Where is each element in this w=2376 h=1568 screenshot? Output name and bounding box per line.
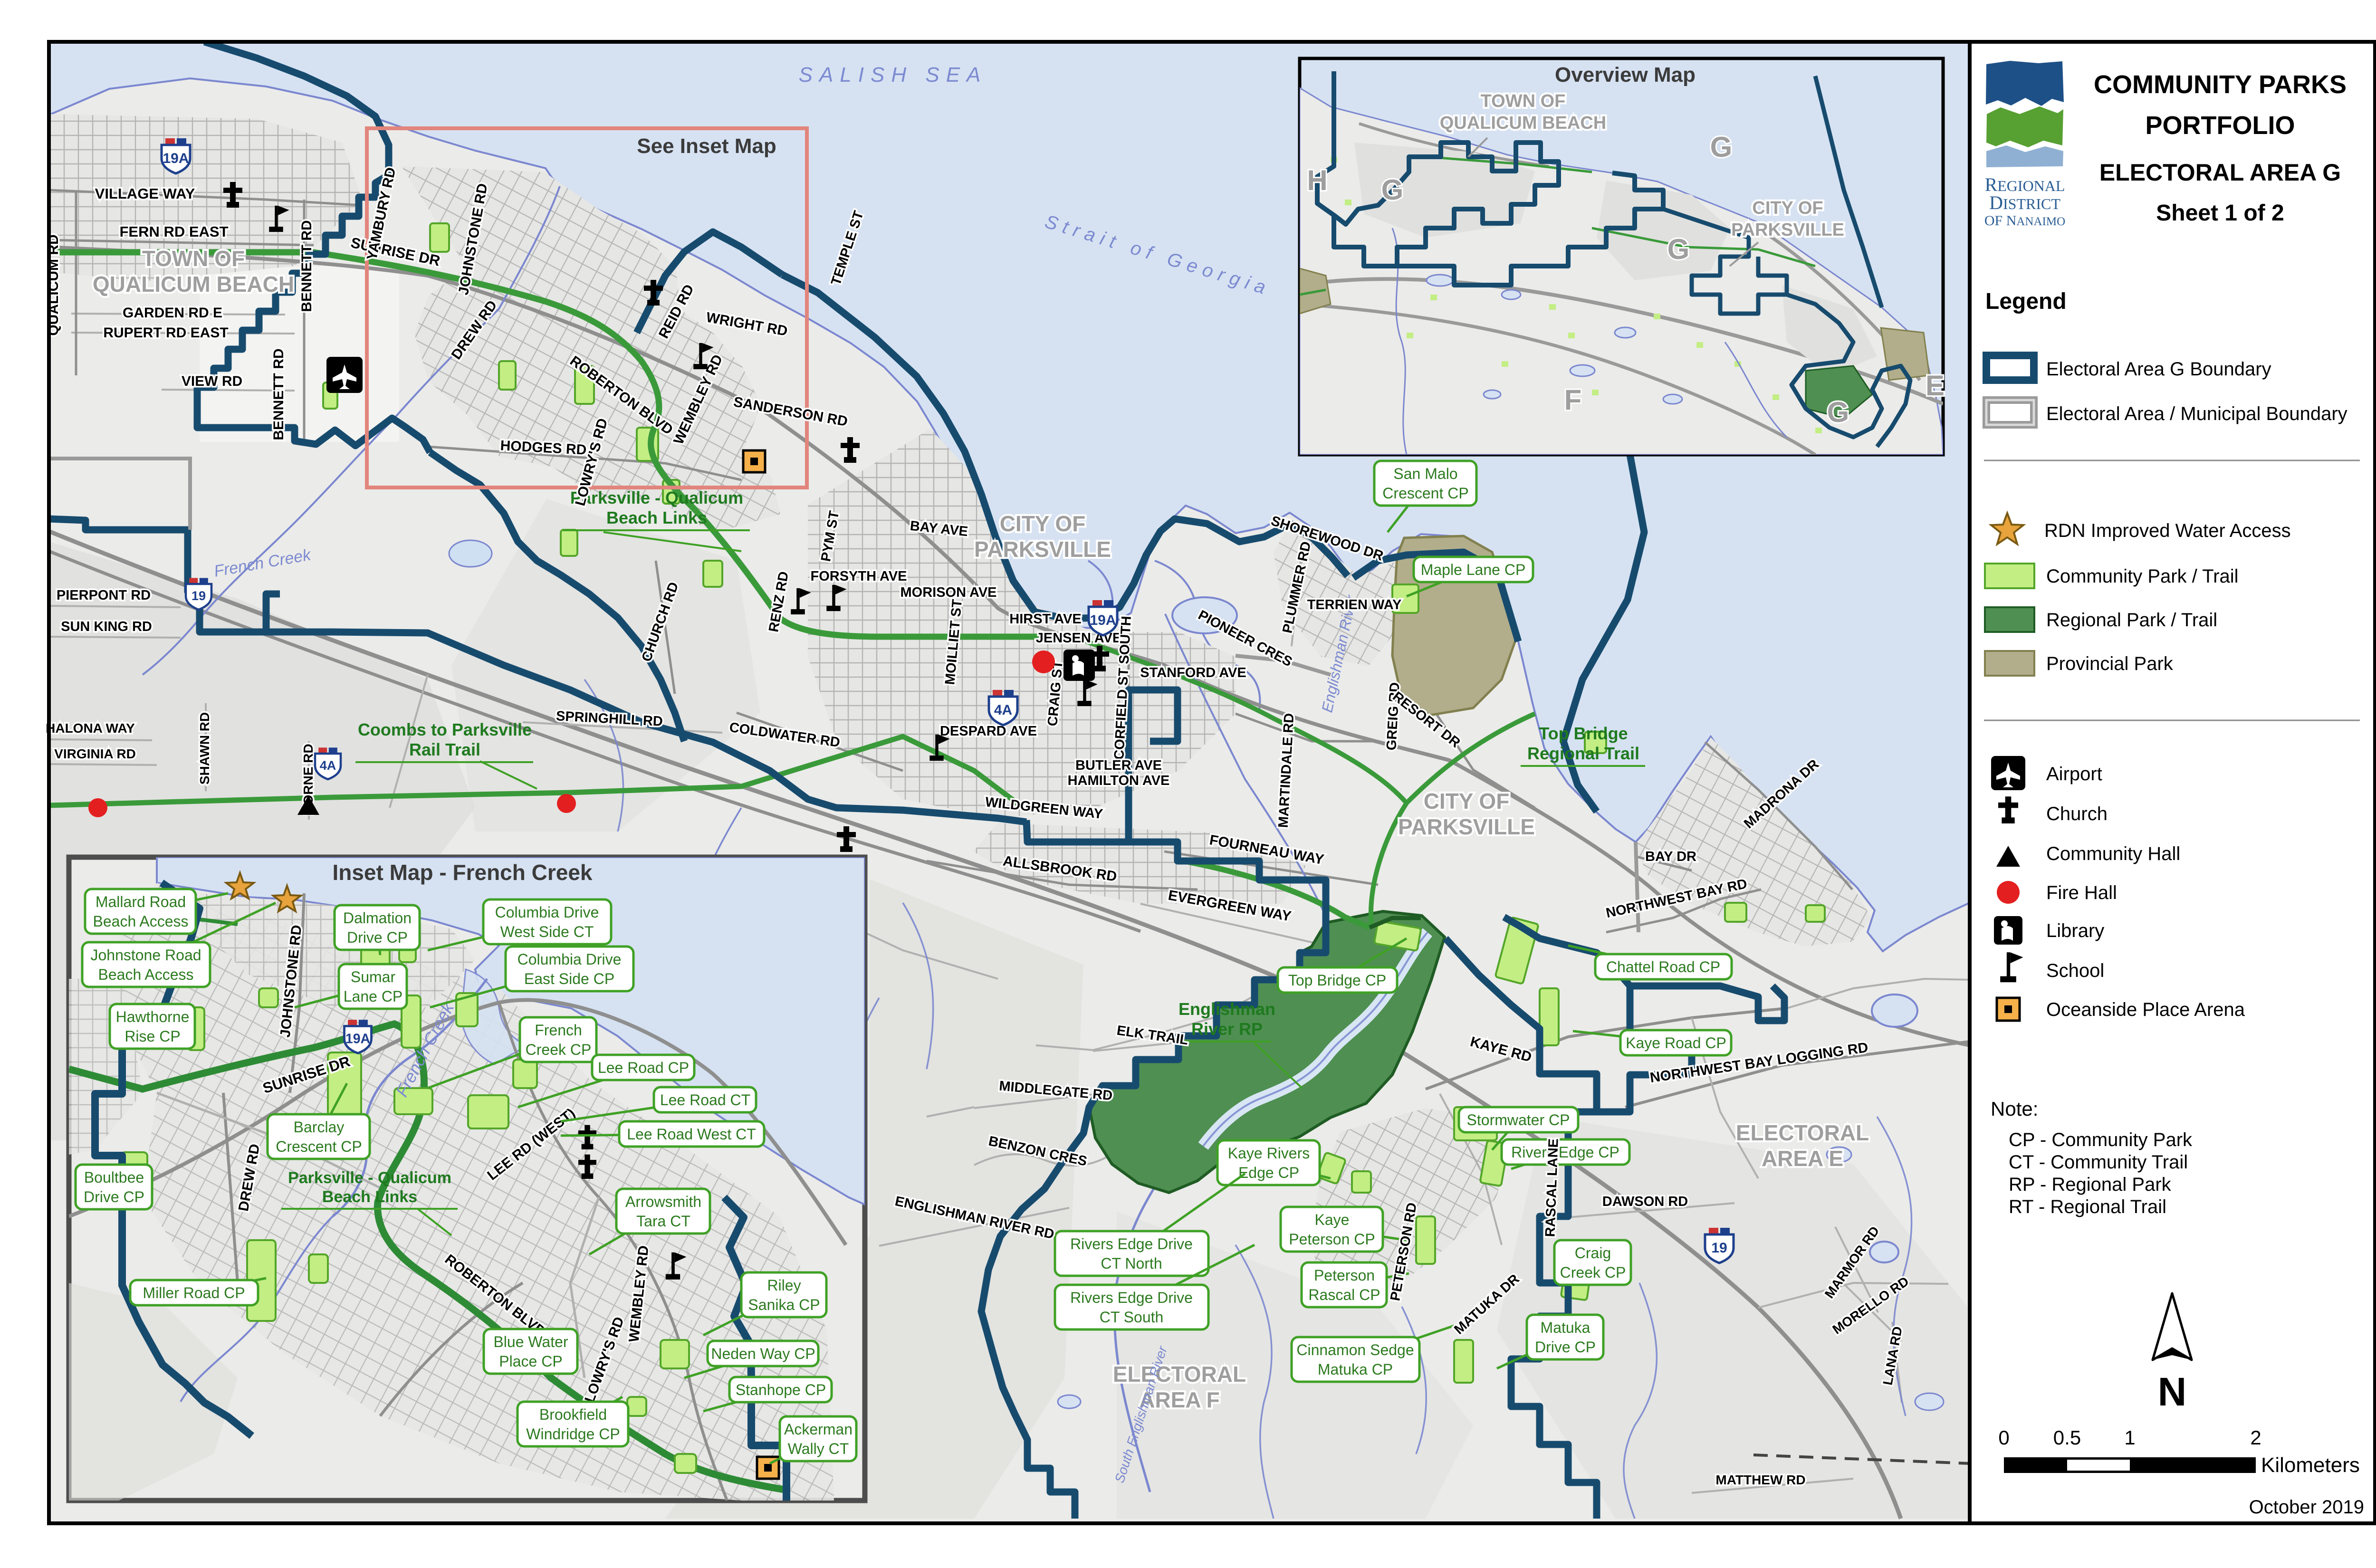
svg-text:Rise CP: Rise CP <box>125 1028 180 1045</box>
svg-text:SUN KING RD: SUN KING RD <box>61 619 152 634</box>
svg-text:Stanhope CP: Stanhope CP <box>736 1381 826 1398</box>
svg-text:VIRGINIA RD: VIRGINIA RD <box>54 746 136 761</box>
svg-text:Rail Trail: Rail Trail <box>409 740 480 759</box>
svg-text:Sanika CP: Sanika CP <box>748 1296 820 1313</box>
svg-text:Parksville - Qualicum: Parksville - Qualicum <box>570 488 743 507</box>
svg-text:Lee Road CT: Lee Road CT <box>660 1091 750 1109</box>
svg-text:E: E <box>1926 370 1945 402</box>
svg-text:Oceanside Place Arena: Oceanside Place Arena <box>2046 999 2245 1020</box>
svg-text:Sumar: Sumar <box>351 968 396 985</box>
svg-text:Church: Church <box>2046 803 2108 824</box>
svg-text:PIERPONT RD: PIERPONT RD <box>57 588 151 603</box>
svg-text:HAMILTON AVE: HAMILTON AVE <box>1068 773 1170 788</box>
svg-text:Community Hall: Community Hall <box>2046 843 2180 864</box>
svg-text:SHAWN RD: SHAWN RD <box>197 712 212 784</box>
svg-text:Miller Road CP: Miller Road CP <box>143 1284 245 1301</box>
svg-text:VIEW RD: VIEW RD <box>182 373 242 389</box>
svg-text:19A: 19A <box>345 1032 370 1047</box>
svg-text:AREA E: AREA E <box>1762 1146 1843 1171</box>
svg-text:Arrowsmith: Arrowsmith <box>625 1193 701 1210</box>
svg-text:Tara CT: Tara CT <box>636 1213 690 1230</box>
svg-text:1: 1 <box>2124 1426 2135 1449</box>
svg-text:Peterson CP: Peterson CP <box>1289 1231 1375 1248</box>
svg-text:FORSYTH AVE: FORSYTH AVE <box>810 569 907 584</box>
svg-text:Neden Way CP: Neden Way CP <box>711 1345 815 1362</box>
svg-text:Crescent CP: Crescent CP <box>1382 485 1468 502</box>
svg-text:October 2019: October 2019 <box>2249 1497 2364 1518</box>
svg-text:PARKSVILLE: PARKSVILLE <box>1731 220 1844 240</box>
svg-text:G: G <box>1667 233 1690 265</box>
svg-text:Hawthorne: Hawthorne <box>116 1008 190 1025</box>
svg-text:RUPERT RD EAST: RUPERT RD EAST <box>103 325 228 341</box>
svg-text:French: French <box>535 1022 582 1039</box>
svg-text:Drive CP: Drive CP <box>347 929 408 946</box>
svg-text:Kaye Road CP: Kaye Road CP <box>1626 1034 1726 1052</box>
svg-text:G: G <box>1710 131 1733 163</box>
svg-text:Windridge CP: Windridge CP <box>526 1425 620 1443</box>
svg-text:Johnstone Road: Johnstone Road <box>90 947 201 964</box>
svg-text:RDN Improved Water Access: RDN Improved Water Access <box>2044 520 2291 541</box>
svg-text:River RP: River RP <box>1191 1019 1263 1039</box>
svg-text:San Malo: San Malo <box>1393 465 1457 482</box>
svg-text:Wally CT: Wally CT <box>788 1440 849 1457</box>
svg-text:TOWN OF: TOWN OF <box>1481 91 1566 111</box>
svg-text:Electoral Area G Boundary: Electoral Area G Boundary <box>2046 359 2271 380</box>
svg-text:Peterson: Peterson <box>1314 1267 1375 1284</box>
svg-text:Kilometers: Kilometers <box>2261 1453 2360 1477</box>
svg-text:Matuka CP: Matuka CP <box>1318 1361 1393 1378</box>
svg-text:19A: 19A <box>1090 612 1116 628</box>
svg-text:Kaye Rivers: Kaye Rivers <box>1228 1145 1310 1162</box>
svg-text:Lee Road West CT: Lee Road West CT <box>627 1126 756 1143</box>
svg-text:Rivers Edge Drive: Rivers Edge Drive <box>1070 1289 1193 1306</box>
svg-text:Place CP: Place CP <box>499 1353 562 1370</box>
svg-text:Community Park / Trail: Community Park / Trail <box>2046 566 2239 587</box>
svg-text:BENNETT RD: BENNETT RD <box>271 348 287 440</box>
svg-text:Coombs to Parksville: Coombs to Parksville <box>358 720 532 739</box>
svg-text:SALISH SEA: SALISH SEA <box>799 63 987 86</box>
svg-text:Rivers Edge Drive: Rivers Edge Drive <box>1070 1235 1193 1252</box>
svg-text:0.5: 0.5 <box>2053 1426 2081 1449</box>
svg-text:BUTLER AVE: BUTLER AVE <box>1075 758 1162 773</box>
svg-text:Airport: Airport <box>2046 764 2102 784</box>
svg-text:Regional Park / Trail: Regional Park / Trail <box>2046 610 2217 631</box>
svg-text:N: N <box>2158 1369 2187 1414</box>
svg-text:PARKSVILLE: PARKSVILLE <box>974 537 1111 562</box>
svg-text:Barclay: Barclay <box>294 1119 345 1136</box>
svg-text:Provincial Park: Provincial Park <box>2046 653 2174 674</box>
svg-text:Inset Map - French Creek: Inset Map - French Creek <box>332 860 592 885</box>
svg-text:2: 2 <box>2250 1426 2261 1449</box>
svg-text:Rascal CP: Rascal CP <box>1308 1286 1380 1303</box>
svg-text:Craig: Craig <box>1575 1244 1611 1262</box>
svg-text:West Side CT: West Side CT <box>500 923 594 940</box>
svg-text:19: 19 <box>1711 1240 1727 1256</box>
svg-text:CITY OF: CITY OF <box>1000 511 1086 536</box>
svg-text:Creek CP: Creek CP <box>526 1041 592 1058</box>
svg-text:Overview Map: Overview Map <box>1555 63 1696 86</box>
svg-text:Lee Road CP: Lee Road CP <box>598 1059 689 1076</box>
svg-text:HALONA WAY: HALONA WAY <box>46 721 135 736</box>
svg-text:Parksville - Qualicum: Parksville - Qualicum <box>288 1169 451 1187</box>
svg-text:TOWN OF: TOWN OF <box>142 246 245 271</box>
svg-text:Edge CP: Edge CP <box>1238 1164 1299 1181</box>
svg-text:GARDEN RD E: GARDEN RD E <box>123 305 222 321</box>
svg-text:COMMUNITY PARKS: COMMUNITY PARKS <box>2094 70 2347 99</box>
svg-text:RT - Regional Trail: RT - Regional Trail <box>2009 1196 2166 1217</box>
svg-text:DISTRICT: DISTRICT <box>1989 192 2060 213</box>
svg-text:4A: 4A <box>320 758 336 773</box>
svg-text:QUALICUM BEACH: QUALICUM BEACH <box>93 272 294 296</box>
svg-text:PARKSVILLE: PARKSVILLE <box>1398 814 1535 839</box>
svg-text:Note:: Note: <box>1991 1098 2038 1120</box>
svg-text:QUALICUM BEACH: QUALICUM BEACH <box>1440 113 1606 133</box>
svg-text:MATTHEW RD: MATTHEW RD <box>1715 1472 1805 1487</box>
svg-text:Beach Access: Beach Access <box>98 966 194 983</box>
svg-text:19A: 19A <box>163 151 189 166</box>
svg-text:Mallard Road: Mallard Road <box>96 893 186 910</box>
svg-text:Beach Links: Beach Links <box>322 1188 417 1206</box>
svg-text:MORISON AVE: MORISON AVE <box>900 585 996 600</box>
svg-text:East Side CP: East Side CP <box>524 970 614 987</box>
svg-text:CT South: CT South <box>1100 1309 1164 1326</box>
svg-text:Chattel Road CP: Chattel Road CP <box>1606 958 1720 975</box>
svg-text:CT - Community Trail: CT - Community Trail <box>2009 1152 2188 1173</box>
svg-text:PORTFOLIO: PORTFOLIO <box>2146 111 2295 140</box>
svg-text:School: School <box>2046 960 2104 981</box>
svg-text:DAWSON RD: DAWSON RD <box>1602 1194 1688 1209</box>
svg-text:Rivers Edge CP: Rivers Edge CP <box>1511 1144 1619 1161</box>
svg-text:DESPARD AVE: DESPARD AVE <box>940 724 1037 739</box>
svg-text:Drive CP: Drive CP <box>84 1188 144 1205</box>
svg-text:Brookfield: Brookfield <box>539 1406 607 1423</box>
svg-text:CT North: CT North <box>1101 1255 1162 1272</box>
svg-text:19: 19 <box>192 589 206 603</box>
svg-text:CITY OF: CITY OF <box>1752 198 1823 218</box>
svg-text:Kaye: Kaye <box>1315 1211 1350 1228</box>
svg-text:Matuka: Matuka <box>1541 1319 1590 1336</box>
svg-text:Top Bridge: Top Bridge <box>1539 724 1628 743</box>
svg-text:VILLAGE WAY: VILLAGE WAY <box>95 185 195 202</box>
svg-text:ELECTORAL AREA G: ELECTORAL AREA G <box>2099 159 2341 186</box>
svg-text:F: F <box>1564 384 1582 416</box>
svg-text:Drive CP: Drive CP <box>1535 1339 1596 1356</box>
svg-text:BENNETT RD: BENNETT RD <box>299 220 315 312</box>
svg-text:TERRIEN WAY: TERRIEN WAY <box>1307 597 1402 612</box>
svg-text:Beach Links: Beach Links <box>606 508 707 527</box>
svg-text:HIRST AVE: HIRST AVE <box>1009 612 1081 627</box>
svg-text:G: G <box>1381 174 1404 206</box>
svg-text:STANFORD AVE: STANFORD AVE <box>1140 665 1246 680</box>
svg-text:Columbia Drive: Columbia Drive <box>517 951 622 968</box>
svg-text:0: 0 <box>1998 1426 2009 1449</box>
svg-text:Dalmation: Dalmation <box>343 909 412 927</box>
svg-text:See Inset Map: See Inset Map <box>637 134 776 158</box>
svg-text:Beach Access: Beach Access <box>93 913 189 930</box>
svg-text:Crescent CP: Crescent CP <box>276 1138 362 1155</box>
svg-text:Boultbee: Boultbee <box>84 1169 144 1186</box>
svg-text:OF NANAIMO: OF NANAIMO <box>1984 213 2065 229</box>
svg-text:Creek CP: Creek CP <box>1560 1264 1626 1281</box>
svg-text:Top Bridge CP: Top Bridge CP <box>1288 972 1386 989</box>
svg-text:CITY OF: CITY OF <box>1424 789 1510 813</box>
svg-text:ELECTORAL: ELECTORAL <box>1113 1362 1246 1386</box>
svg-text:BAY DR: BAY DR <box>1645 849 1696 864</box>
svg-text:Blue Water: Blue Water <box>493 1333 568 1350</box>
svg-text:Sheet 1 of 2: Sheet 1 of 2 <box>2156 201 2284 226</box>
svg-text:G: G <box>1827 396 1849 428</box>
svg-text:ELECTORAL: ELECTORAL <box>1736 1120 1869 1145</box>
svg-text:RP - Regional Park: RP - Regional Park <box>2009 1174 2172 1195</box>
svg-text:Cinnamon Sedge: Cinnamon Sedge <box>1296 1341 1414 1358</box>
svg-text:Electoral Area / Municipal Bou: Electoral Area / Municipal Boundary <box>2046 403 2347 424</box>
svg-text:Riley: Riley <box>767 1277 801 1294</box>
svg-text:Legend: Legend <box>1985 289 2067 314</box>
svg-text:FERN RD EAST: FERN RD EAST <box>119 223 228 240</box>
svg-text:Englishman: Englishman <box>1178 999 1275 1019</box>
svg-text:Fire Hall: Fire Hall <box>2046 882 2117 903</box>
svg-text:Stormwater CP: Stormwater CP <box>1467 1111 1570 1128</box>
svg-text:CP - Community Park: CP - Community Park <box>2009 1129 2193 1150</box>
svg-text:Library: Library <box>2046 920 2104 941</box>
svg-text:Maple Lane CP: Maple Lane CP <box>1421 561 1526 578</box>
svg-text:Lane CP: Lane CP <box>344 988 403 1005</box>
svg-text:Regional Trail: Regional Trail <box>1527 744 1639 763</box>
svg-text:4A: 4A <box>994 702 1012 718</box>
svg-text:Ackerman: Ackerman <box>784 1421 853 1438</box>
svg-text:Columbia Drive: Columbia Drive <box>495 904 599 921</box>
svg-text:H: H <box>1307 164 1327 196</box>
